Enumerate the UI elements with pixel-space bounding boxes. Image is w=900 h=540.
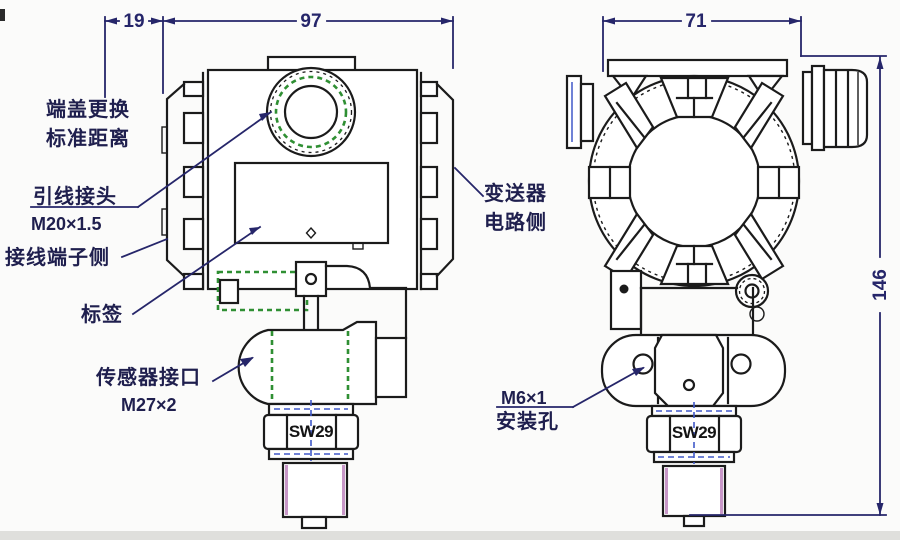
hinge-bracket [611,271,641,329]
right-end-cap [421,82,453,289]
terminal-side-label: 接线端子侧 [5,244,110,273]
dim-cover-clearance: 19 [105,11,163,97]
front-view: SW29 [567,60,867,526]
nameplate [235,163,388,249]
pressure-port-side [283,463,347,517]
lead-connector-label: 引线接头 [33,183,117,212]
sensor-port-label: 传感器接口 [96,364,201,393]
sensor-capsule-side [239,322,406,404]
scan-edge-band [0,531,900,540]
lead-connector-spec: M20×1.5 [31,210,102,239]
lead-connector-boss [267,68,355,156]
process-fitting-side: SW29 [264,400,358,528]
circuit-side-label: 变送器 电路侧 [484,180,547,238]
svg-text:19: 19 [123,11,144,32]
pressure-port-front [663,466,725,516]
cable-entry-plug [567,76,593,148]
mounting-flange [602,335,785,406]
drawing-canvas: SW29 [0,0,900,540]
tag-label: 标签 [81,301,123,330]
scan-artifact [0,9,5,21]
svg-text:97: 97 [300,11,321,32]
wrench-size-side-text: SW29 [289,422,333,441]
pressure-transmitter-dimension-drawing: SW29 [0,0,900,540]
svg-text:71: 71 [685,11,707,32]
end-cover-label: 端盖更换 标准距离 [46,96,130,154]
wrench-size-front-text: SW29 [672,423,716,442]
sensor-port-spec: M27×2 [121,391,177,420]
mounting-hole-label: 安装孔 [496,408,559,437]
process-fitting-front: SW29 [647,402,741,526]
svg-text:146: 146 [870,269,891,301]
cable-gland [803,66,867,150]
side-view: SW29 [162,57,453,528]
housing-front-face [589,76,799,286]
top-band [608,60,787,76]
